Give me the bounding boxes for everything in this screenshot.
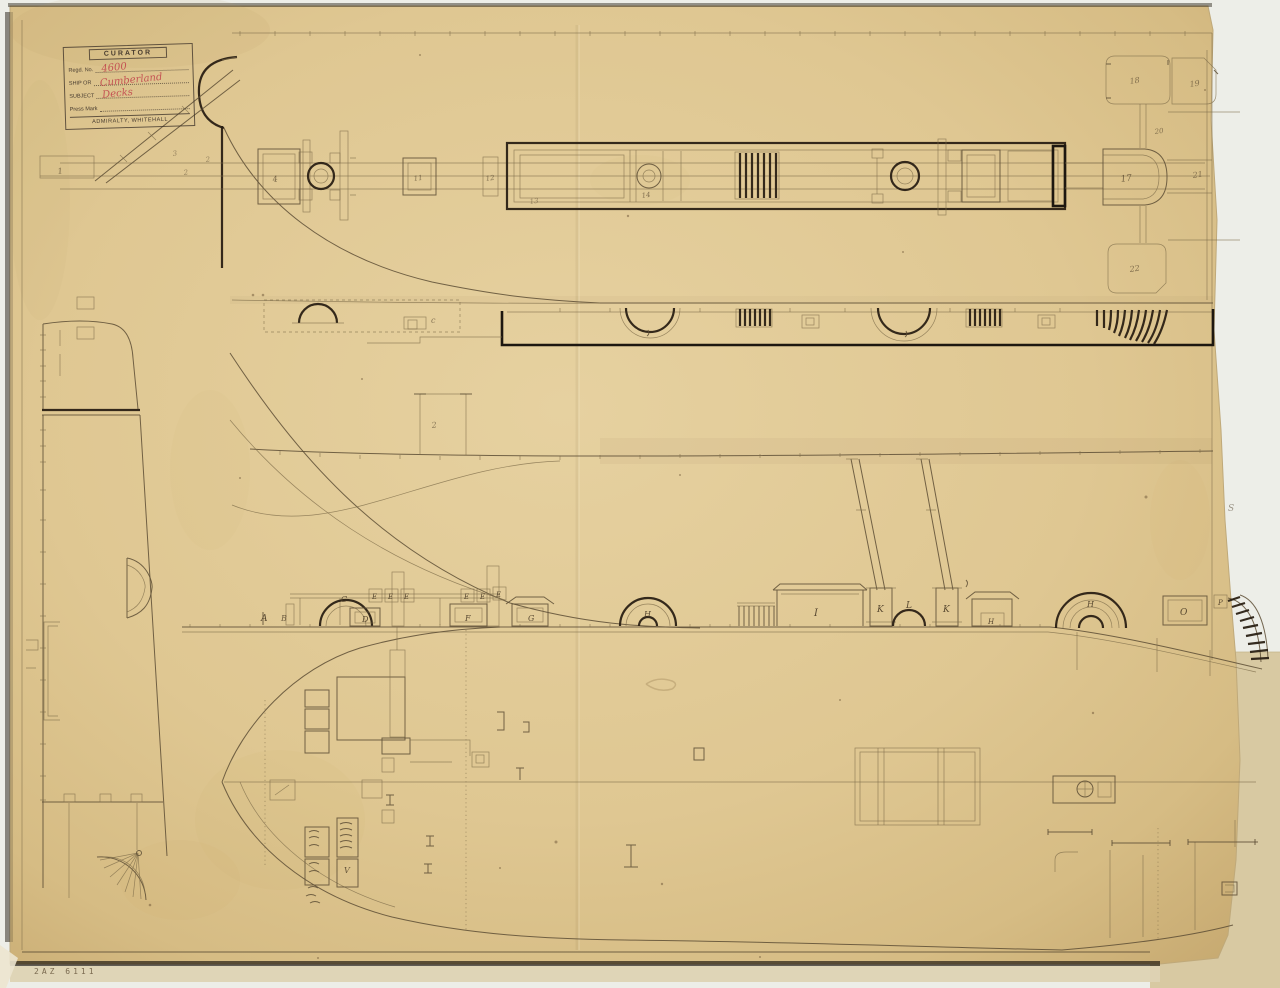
drawing-label: c [431, 316, 436, 325]
stamp-title: CURATOR [88, 47, 167, 60]
drawing-label: 12 [485, 174, 495, 183]
drawing-label: H [987, 618, 995, 626]
drawing-label: C [341, 595, 347, 604]
drawing-label: H [643, 610, 652, 619]
scan-edge-bottom [10, 961, 1160, 966]
drawing-label: P [1217, 599, 1223, 607]
drawing-label: E [495, 591, 501, 599]
drawing-label: 17 [1120, 173, 1133, 185]
drawing-label: E [371, 593, 377, 601]
drawing-label: 2 [430, 420, 437, 430]
strip-grating-1 [740, 309, 770, 326]
drawing-label: H [1086, 600, 1095, 609]
drawing-label: 22 [1128, 264, 1140, 274]
stamp-field-label: Press Mark [70, 106, 98, 113]
strip-grating-2 [970, 309, 1000, 326]
stamp-field-row: Press Mark [69, 99, 189, 113]
stamp-field-row: Regd. No. 4600 [68, 60, 188, 74]
stamp-field-value: 4600 [101, 61, 127, 75]
drawing-label: E [463, 593, 469, 601]
drawing-label: 21 [1191, 170, 1203, 180]
drawing-label: 4 [271, 174, 278, 184]
drawing-label: O [1180, 608, 1188, 618]
drawing-label: E [403, 593, 409, 601]
curator-stamp: CURATOR Regd. No. 4600 SHIP OR Cumberlan… [63, 43, 196, 130]
stamp-field-label: Regd. No. [68, 67, 93, 74]
drawing-label: K [876, 605, 885, 615]
drawing-label: 19 [1189, 79, 1200, 89]
drawing-label: 20 [1153, 127, 1164, 136]
ship-plan-scan: ABCDEEEEEEFGHIKLKHHOPcVS1322411121314217… [0, 0, 1280, 988]
drawing-label: 13 [529, 197, 539, 206]
stamp-field-row: SUBJECT Decks [69, 86, 189, 100]
drawing-label: D [361, 615, 369, 624]
stamp-field-value: Decks [102, 87, 134, 101]
drawing-label: 18 [1129, 76, 1140, 86]
stamp-footer: ADMIRALTY, WHITEHALL [70, 113, 190, 126]
drawing-label: K [942, 605, 951, 615]
scan-edge-left [5, 12, 10, 942]
drawing-label: 14 [641, 191, 651, 200]
drawing-label: A [260, 614, 268, 624]
drawing-label: E [387, 593, 393, 601]
stamp-field-row: SHIP OR Cumberland [69, 73, 189, 87]
drawing-label: L [905, 601, 912, 611]
stamp-field-label: SUBJECT [69, 93, 94, 100]
drawing-label: G [528, 614, 535, 623]
page-root: { "colors": { "paper": "#dfc792", "paper… [0, 0, 1280, 988]
drawing-label: E [479, 593, 485, 601]
drawing-label: F [464, 614, 471, 623]
stamp-field-label: SHIP OR [69, 80, 92, 87]
drawing-label: 11 [413, 174, 423, 183]
drawing-label: S [1228, 504, 1234, 514]
drawing-label: B [280, 614, 287, 623]
archive-mark: 2AZ 6111 [34, 967, 97, 976]
